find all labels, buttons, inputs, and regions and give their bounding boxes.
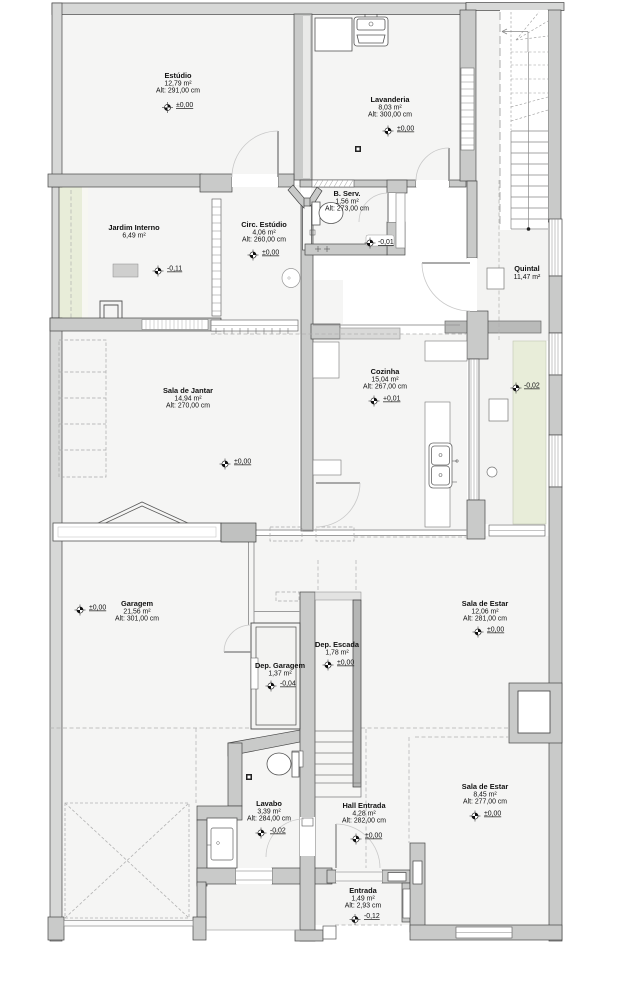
svg-text:1,56 m²: 1,56 m²: [335, 199, 359, 206]
svg-text:Estúdio: Estúdio: [164, 71, 192, 80]
svg-text:±0,00: ±0,00: [487, 627, 504, 634]
svg-text:B. Serv.: B. Serv.: [334, 189, 361, 198]
svg-text:-0,01: -0,01: [378, 239, 394, 246]
svg-text:Sala de Jantar: Sala de Jantar: [163, 386, 213, 395]
svg-text:1,78 m²: 1,78 m²: [325, 650, 349, 657]
svg-text:Lavanderia: Lavanderia: [370, 95, 410, 104]
svg-text:-0,12: -0,12: [364, 913, 380, 920]
svg-text:Entrada: Entrada: [349, 886, 377, 895]
svg-text:Quintal: Quintal: [514, 264, 539, 273]
svg-text:Alt: 284,00 cm: Alt: 284,00 cm: [247, 816, 291, 823]
svg-text:±0,00: ±0,00: [337, 660, 354, 667]
svg-text:8,03 m²: 8,03 m²: [378, 105, 402, 112]
svg-text:Garagem: Garagem: [121, 599, 153, 608]
svg-text:Circ. Estúdio: Circ. Estúdio: [241, 220, 287, 229]
svg-text:12,06 m²: 12,06 m²: [471, 609, 499, 616]
svg-text:Alt: 277,00 cm: Alt: 277,00 cm: [463, 799, 507, 806]
svg-text:Sala de Estar: Sala de Estar: [462, 782, 509, 791]
svg-text:Alt: 2,93 cm: Alt: 2,93 cm: [345, 903, 382, 910]
svg-text:±0,00: ±0,00: [89, 605, 106, 612]
svg-text:11,47 m²: 11,47 m²: [514, 274, 541, 281]
svg-text:1,37 m²: 1,37 m²: [268, 671, 292, 678]
svg-text:-0,04: -0,04: [280, 681, 296, 688]
svg-text:15,04 m²: 15,04 m²: [371, 377, 399, 384]
svg-text:Dep. Escada: Dep. Escada: [315, 640, 360, 649]
svg-text:Alt: 300,00 cm: Alt: 300,00 cm: [368, 112, 412, 119]
svg-text:4,06 m²: 4,06 m²: [252, 230, 276, 237]
svg-text:+0,01: +0,01: [383, 396, 401, 403]
svg-text:Alt: 260,00 cm: Alt: 260,00 cm: [242, 237, 286, 244]
svg-text:Alt: 291,00 cm: Alt: 291,00 cm: [156, 88, 200, 95]
svg-text:Sala de Estar: Sala de Estar: [462, 599, 509, 608]
svg-text:Hall Entrada: Hall Entrada: [342, 801, 386, 810]
svg-text:Alt: 282,00 cm: Alt: 282,00 cm: [342, 818, 386, 825]
svg-text:21,56 m²: 21,56 m²: [123, 609, 151, 616]
svg-text:±0,00: ±0,00: [365, 833, 382, 840]
svg-text:Lavabo: Lavabo: [256, 799, 282, 808]
svg-text:8,45 m²: 8,45 m²: [473, 792, 497, 799]
svg-text:±0,00: ±0,00: [234, 459, 251, 466]
svg-text:Alt: 267,00 cm: Alt: 267,00 cm: [363, 384, 407, 391]
svg-text:±0,00: ±0,00: [484, 811, 501, 818]
svg-text:12,79 m²: 12,79 m²: [164, 81, 192, 88]
svg-text:Alt: 273,00 cm: Alt: 273,00 cm: [325, 206, 369, 213]
svg-text:Alt: 281,00 cm: Alt: 281,00 cm: [463, 616, 507, 623]
svg-text:4,28 m²: 4,28 m²: [352, 811, 376, 818]
svg-text:Alt: 301,00 cm: Alt: 301,00 cm: [115, 616, 159, 623]
svg-text:±0,00: ±0,00: [176, 102, 193, 109]
svg-text:-0,02: -0,02: [270, 828, 286, 835]
svg-text:Cozinha: Cozinha: [371, 367, 401, 376]
svg-text:Alt: 270,00 cm: Alt: 270,00 cm: [166, 403, 210, 410]
svg-text:±0,00: ±0,00: [262, 250, 279, 257]
svg-text:1,49 m²: 1,49 m²: [351, 896, 375, 903]
svg-text:Jardim Interno: Jardim Interno: [108, 223, 160, 232]
svg-text:±0,00: ±0,00: [397, 126, 414, 133]
svg-text:-0,11: -0,11: [167, 266, 182, 273]
svg-text:Dep. Garagem: Dep. Garagem: [255, 661, 306, 670]
svg-text:-0,02: -0,02: [524, 383, 540, 390]
svg-text:14,94 m²: 14,94 m²: [174, 396, 202, 403]
svg-text:6,49 m²: 6,49 m²: [122, 233, 146, 240]
svg-text:3,39 m²: 3,39 m²: [257, 809, 281, 816]
